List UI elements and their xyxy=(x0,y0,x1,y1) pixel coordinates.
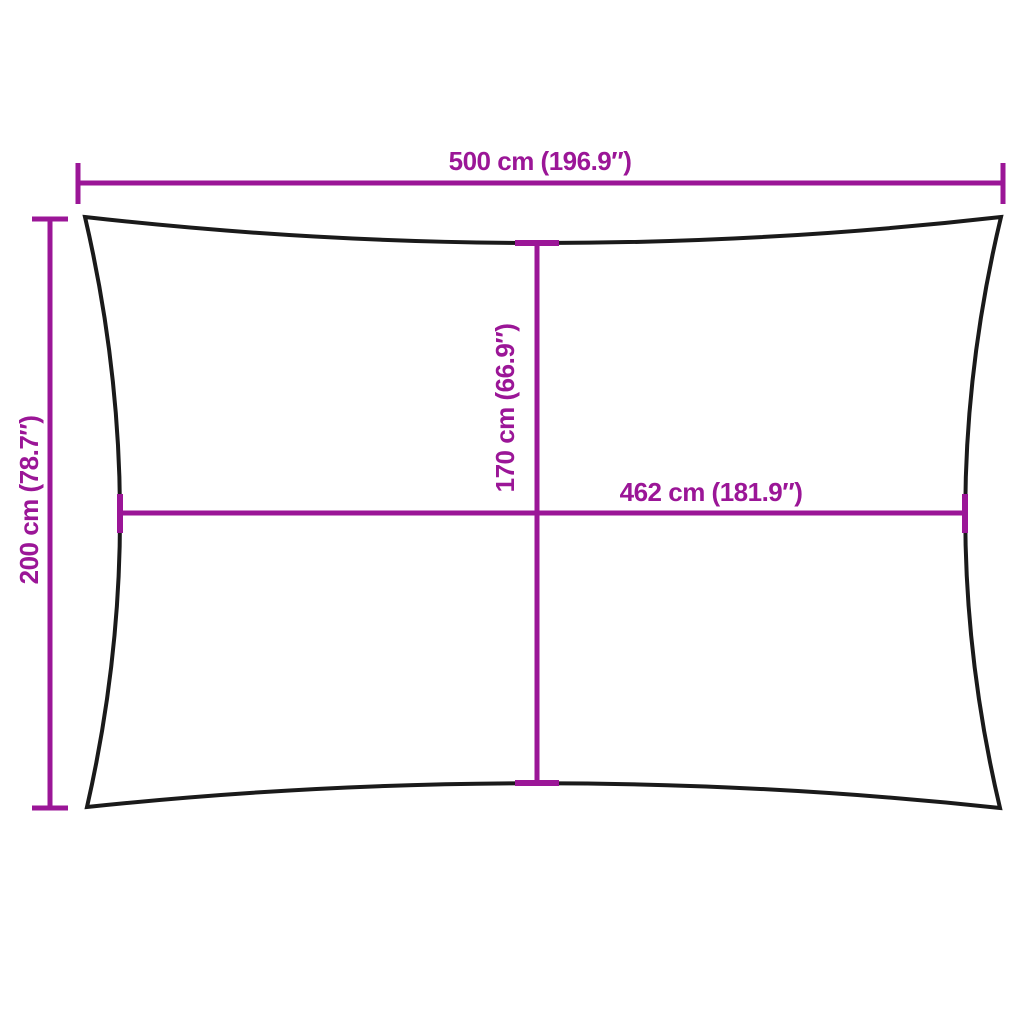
diagram-svg: 500 cm (196.9″) 200 cm (78.7″) 170 cm (6… xyxy=(0,0,1024,1024)
dimension-line-inner-width xyxy=(120,494,965,533)
label-inner-width: 462 cm (181.9″) xyxy=(620,477,803,507)
dimension-diagram: 500 cm (196.9″) 200 cm (78.7″) 170 cm (6… xyxy=(0,0,1024,1024)
label-left-height: 200 cm (78.7″) xyxy=(14,416,44,585)
label-top-width: 500 cm (196.9″) xyxy=(449,146,632,176)
label-inner-height: 170 cm (66.9″) xyxy=(490,324,520,493)
